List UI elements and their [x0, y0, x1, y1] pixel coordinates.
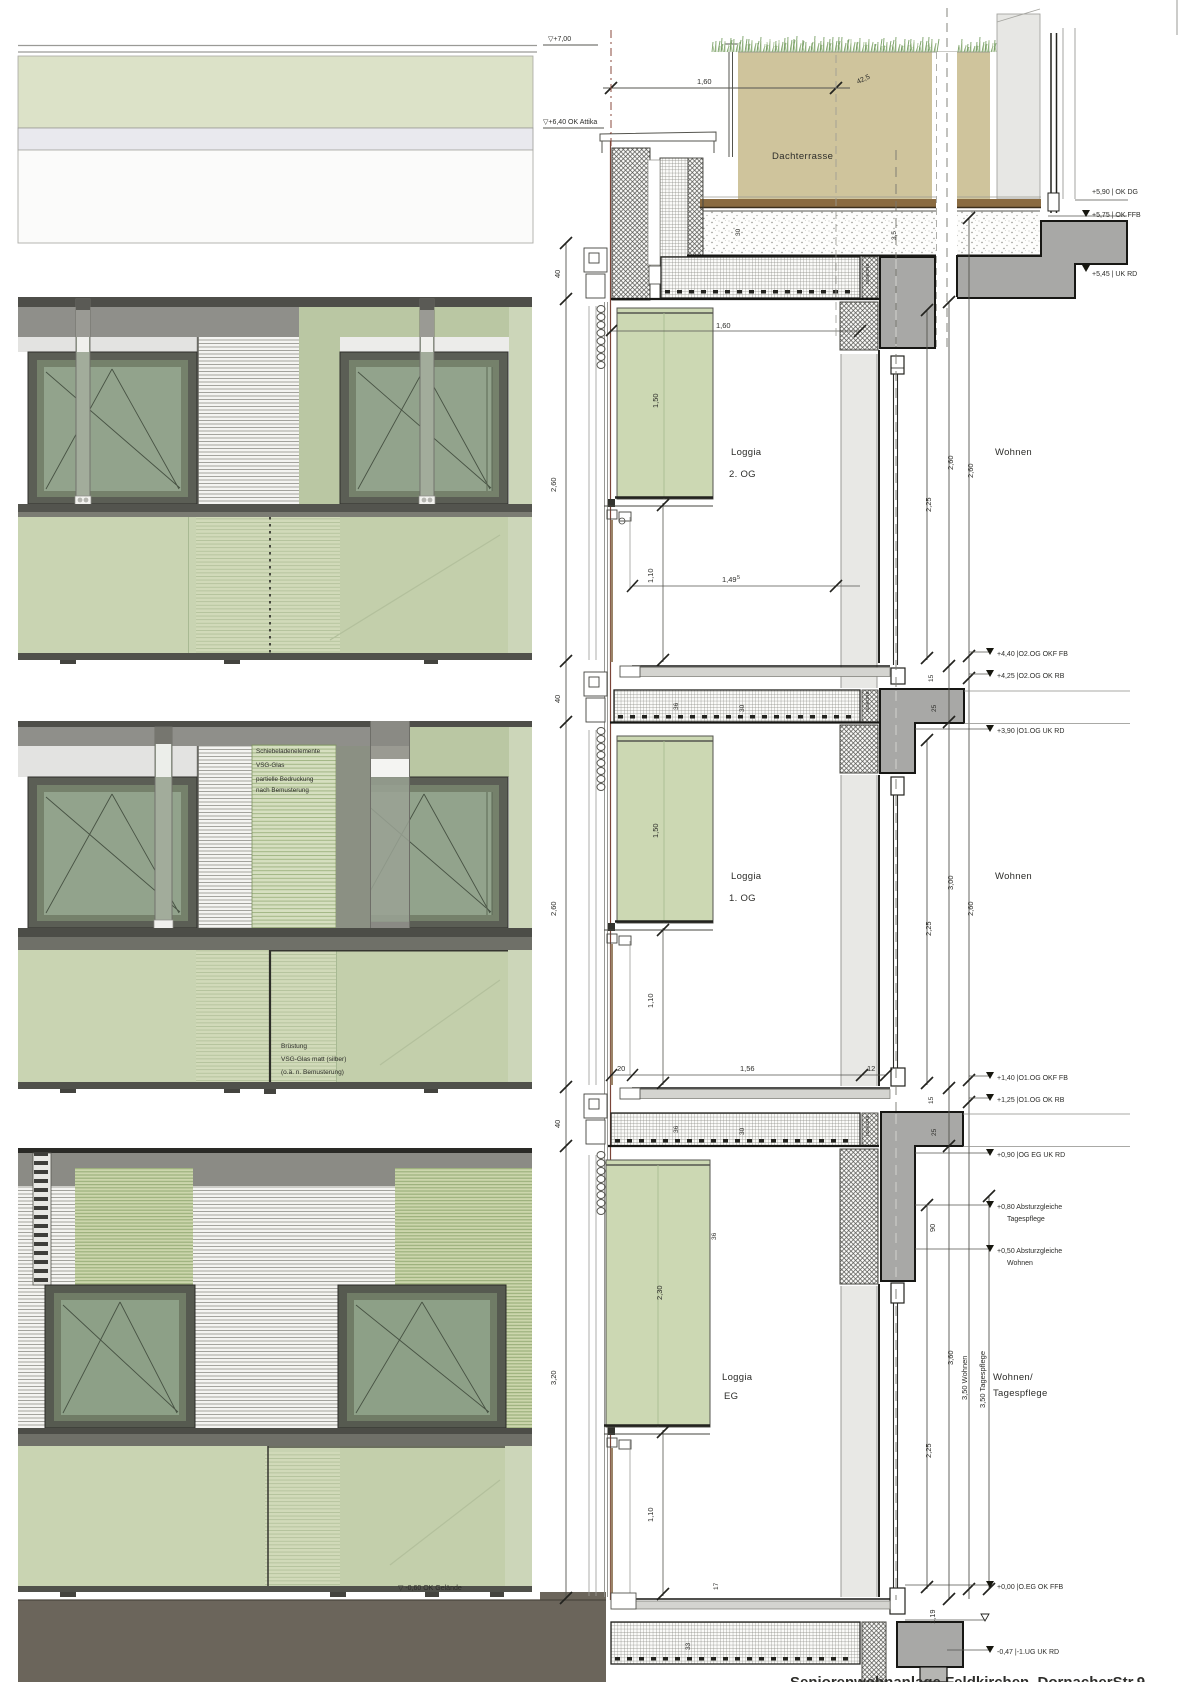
- svg-text:Tagespflege: Tagespflege: [1007, 1216, 1045, 1223]
- svg-text:partielle Bedruckung: partielle Bedruckung: [256, 776, 314, 783]
- svg-text:2,25: 2,25: [924, 921, 933, 936]
- svg-text:VSG-Glas: VSG-Glas: [256, 762, 284, 769]
- svg-text:2,30: 2,30: [655, 1285, 664, 1300]
- svg-text:+0,90 |OG EG UK RD: +0,90 |OG EG UK RD: [997, 1152, 1065, 1159]
- svg-text:2,25: 2,25: [924, 497, 933, 512]
- svg-text:1,50: 1,50: [651, 823, 660, 838]
- svg-text:Schiebeladenelemente: Schiebeladenelemente: [256, 748, 321, 755]
- svg-text:Dachterrasse: Dachterrasse: [772, 151, 833, 162]
- svg-text:3,50 Wohnen: 3,50 Wohnen: [960, 1356, 969, 1400]
- svg-text:2,60: 2,60: [966, 901, 975, 916]
- svg-text:3,60: 3,60: [946, 1350, 955, 1365]
- svg-text:3,5: 3,5: [891, 231, 898, 240]
- svg-text:30: 30: [735, 228, 742, 236]
- svg-text:40: 40: [553, 695, 562, 703]
- svg-text:1,10: 1,10: [646, 1507, 655, 1522]
- svg-text:2,60: 2,60: [966, 463, 975, 478]
- svg-text:17: 17: [713, 1582, 720, 1590]
- svg-text:36: 36: [711, 1232, 718, 1240]
- svg-text:+5,45 | UK RD: +5,45 | UK RD: [1092, 271, 1137, 278]
- svg-text:EG: EG: [724, 1391, 738, 1402]
- svg-text:36: 36: [673, 702, 680, 710]
- svg-text:25: 25: [931, 704, 938, 712]
- svg-text:40: 40: [553, 1120, 562, 1128]
- svg-text:Tagespflege: Tagespflege: [993, 1388, 1048, 1399]
- svg-text:36: 36: [673, 1125, 680, 1133]
- svg-text:ISOKORB: ISOKORB: [865, 691, 870, 712]
- svg-text:Loggia: Loggia: [731, 871, 762, 882]
- svg-text:15: 15: [928, 674, 935, 682]
- svg-text:Loggia: Loggia: [722, 1372, 753, 1383]
- svg-text:+0,50 Absturzgleiche: +0,50 Absturzgleiche: [997, 1248, 1062, 1255]
- svg-text:2. OG: 2. OG: [729, 469, 756, 480]
- svg-text:30: 30: [739, 704, 746, 712]
- svg-text:2,60: 2,60: [549, 477, 558, 492]
- svg-text:Wohnen/: Wohnen/: [993, 1372, 1033, 1383]
- svg-text:▽ -0,60 OK Gelände: ▽ -0,60 OK Gelände: [398, 1585, 462, 1592]
- svg-text:(o.ä. n. Bemusterung): (o.ä. n. Bemusterung): [281, 1069, 344, 1076]
- svg-text:2,60: 2,60: [549, 901, 558, 916]
- svg-text:1,10: 1,10: [646, 568, 655, 583]
- svg-text:1,60: 1,60: [716, 321, 731, 330]
- svg-text:Wohnen: Wohnen: [1007, 1260, 1033, 1267]
- svg-text:+4,40 |O2.OG OKF FB: +4,40 |O2.OG OKF FB: [997, 651, 1068, 658]
- svg-text:+1,40 |O1.OG OKF FB: +1,40 |O1.OG OKF FB: [997, 1075, 1068, 1082]
- svg-text:1. OG: 1. OG: [729, 893, 756, 904]
- svg-text:40: 40: [553, 270, 562, 278]
- svg-text:1,60: 1,60: [697, 77, 712, 86]
- svg-text:2,60: 2,60: [946, 455, 955, 470]
- svg-text:Brüstung: Brüstung: [281, 1043, 307, 1050]
- svg-text:▽+6,40 OK Attika: ▽+6,40 OK Attika: [543, 119, 597, 126]
- svg-text:12: 12: [867, 1064, 875, 1073]
- svg-text:90: 90: [928, 1224, 937, 1232]
- svg-text:+5,90 | OK DG: +5,90 | OK DG: [1092, 189, 1138, 196]
- svg-text:Loggia: Loggia: [731, 447, 762, 458]
- svg-text:33: 33: [685, 1642, 692, 1650]
- svg-text:nach Bemusterung: nach Bemusterung: [256, 787, 309, 794]
- svg-text:1,56: 1,56: [740, 1064, 755, 1073]
- svg-text:Wohnen: Wohnen: [995, 447, 1032, 458]
- svg-text:2,25: 2,25: [924, 1443, 933, 1458]
- svg-text:-0,47 |-1.UG UK RD: -0,47 |-1.UG UK RD: [997, 1649, 1059, 1656]
- svg-text:ISOKORB: ISOKORB: [865, 1115, 870, 1136]
- svg-text:30: 30: [739, 1127, 746, 1135]
- svg-text:+0,00 |O.EG OK FFB: +0,00 |O.EG OK FFB: [997, 1584, 1064, 1591]
- svg-text:1,10: 1,10: [646, 993, 655, 1008]
- svg-text:+1,25 |O1.OG OK RB: +1,25 |O1.OG OK RB: [997, 1097, 1065, 1104]
- svg-text:3,50 Tagespflege: 3,50 Tagespflege: [978, 1351, 987, 1408]
- svg-text:+4,25 |O2.OG OK RB: +4,25 |O2.OG OK RB: [997, 673, 1065, 680]
- svg-text:25: 25: [931, 1128, 938, 1136]
- svg-text:+5,75 | OK FFB: +5,75 | OK FFB: [1092, 212, 1141, 219]
- svg-text:Seniorenwohnanlage Feldkirchen: Seniorenwohnanlage Feldkirchen, Dornache…: [790, 1674, 1145, 1682]
- svg-text:15: 15: [928, 1096, 935, 1104]
- svg-text:VSG-Glas matt (silber): VSG-Glas matt (silber): [281, 1056, 346, 1063]
- svg-text:20: 20: [617, 1064, 625, 1073]
- svg-text:▽+7,00: ▽+7,00: [548, 36, 571, 43]
- svg-text:+0,80 Absturzgleiche: +0,80 Absturzgleiche: [997, 1204, 1062, 1211]
- svg-text:3,00: 3,00: [946, 875, 955, 890]
- svg-text:ISOKORB: ISOKORB: [865, 263, 870, 284]
- svg-text:1,49: 1,49: [722, 575, 737, 584]
- svg-text:Wohnen: Wohnen: [995, 871, 1032, 882]
- svg-text:5: 5: [737, 575, 740, 581]
- svg-text:3,20: 3,20: [549, 1370, 558, 1385]
- svg-text:+3,90 |O1.OG UK RD: +3,90 |O1.OG UK RD: [997, 728, 1064, 735]
- svg-text:1,19: 1,19: [928, 1609, 937, 1624]
- svg-text:1,50: 1,50: [651, 393, 660, 408]
